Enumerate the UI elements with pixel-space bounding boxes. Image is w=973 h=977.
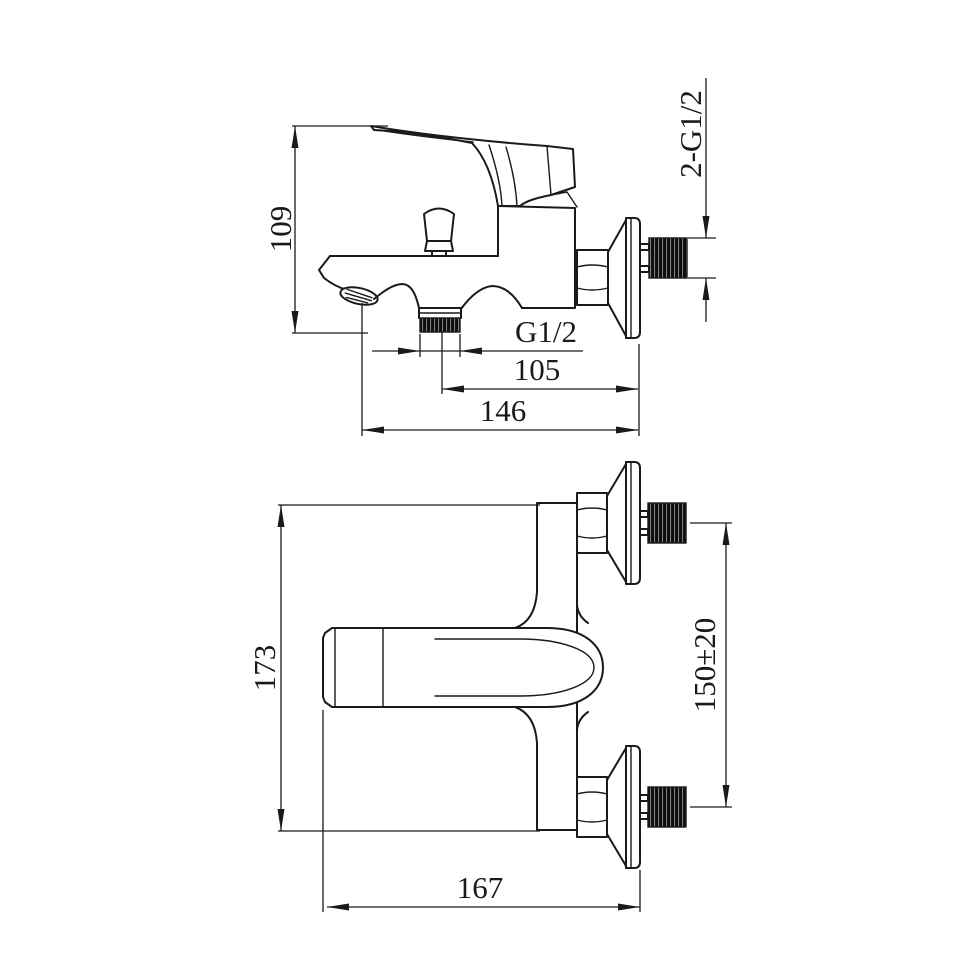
wall-plate bbox=[626, 746, 640, 868]
dim-label-109: 109 bbox=[263, 206, 298, 253]
dim-label-146: 146 bbox=[480, 393, 527, 428]
dim-label-167: 167 bbox=[457, 870, 504, 905]
aerator-icon bbox=[339, 284, 379, 308]
dimension-outlet-to-wall: 105 bbox=[442, 352, 638, 393]
eccentric-cone bbox=[607, 748, 626, 866]
dim-label-105: 105 bbox=[514, 352, 561, 387]
dim-label-173: 173 bbox=[247, 645, 282, 692]
eccentric-cone bbox=[607, 464, 626, 582]
wall-connection bbox=[577, 218, 687, 338]
dimension-spout-to-wall: 146 bbox=[362, 393, 638, 434]
side-view: 109 G1/2 105 146 bbox=[263, 78, 716, 436]
dimension-inlet-spacing: 150±20 bbox=[687, 523, 732, 807]
outlet-thread bbox=[420, 318, 460, 332]
technical-drawing-canvas: 109 G1/2 105 146 bbox=[0, 0, 973, 977]
spout bbox=[319, 256, 498, 332]
bath-mixer-dimension-drawing: 109 G1/2 105 146 bbox=[0, 0, 973, 977]
lever-handle bbox=[371, 126, 577, 207]
hex-nut bbox=[577, 250, 608, 305]
hex-nut bbox=[577, 493, 607, 553]
mixer-body bbox=[461, 206, 575, 309]
wall-plate bbox=[626, 462, 640, 584]
inlet-nipple-thread bbox=[648, 787, 686, 827]
eccentric-cone bbox=[608, 220, 626, 336]
inlet-top bbox=[577, 462, 686, 584]
dim-label-150: 150±20 bbox=[687, 618, 722, 713]
hex-nut bbox=[577, 777, 607, 837]
inlet-nipple-thread bbox=[649, 238, 687, 278]
dimension-outlet-thread: G1/2 bbox=[372, 314, 583, 357]
plan-view: 173 150±20 167 bbox=[247, 462, 732, 912]
shower-outlet bbox=[419, 308, 461, 332]
wall-plate bbox=[626, 218, 640, 338]
dimension-wall-threads: 2-G1/2 bbox=[673, 78, 716, 322]
inlet-nipple-thread bbox=[648, 503, 686, 543]
diverter-knob bbox=[424, 209, 454, 257]
dim-label-g12: G1/2 bbox=[515, 314, 577, 349]
handle-top-view bbox=[323, 628, 603, 707]
inlet-bottom bbox=[577, 746, 686, 868]
dim-label-2g12: 2-G1/2 bbox=[673, 90, 708, 178]
